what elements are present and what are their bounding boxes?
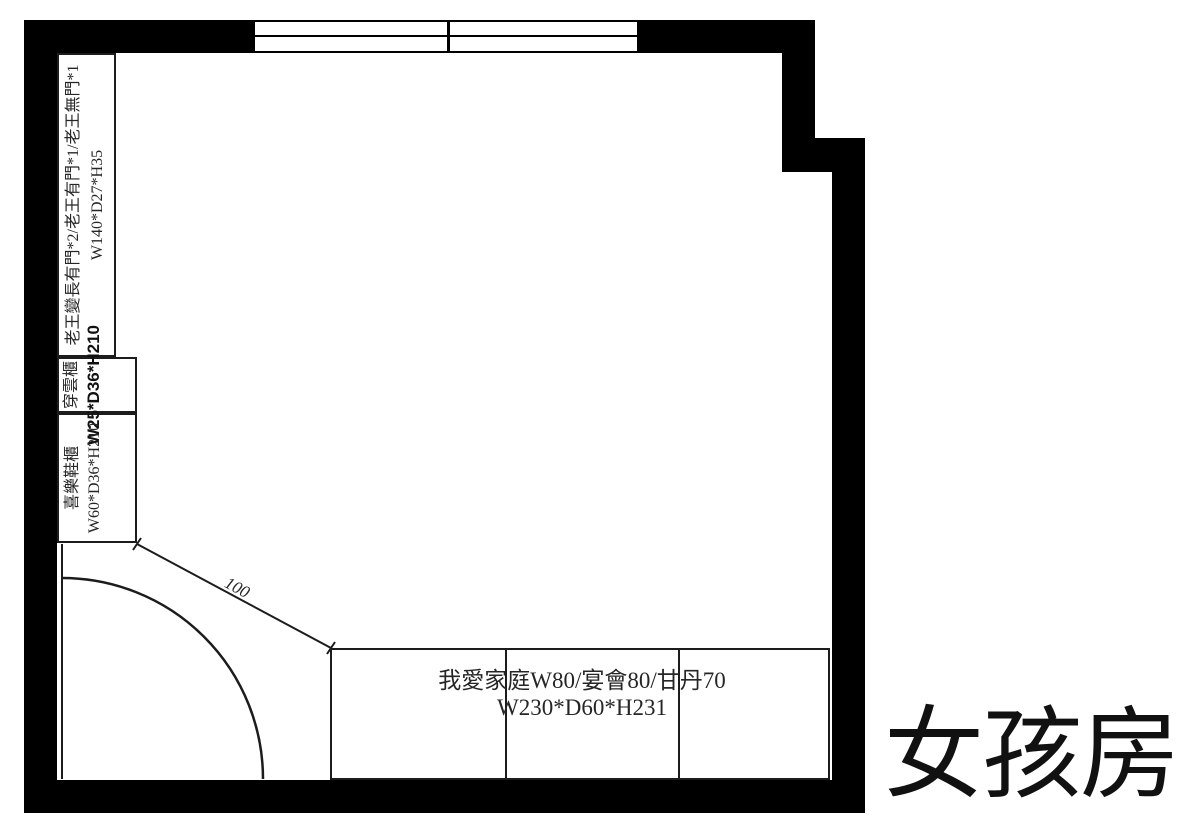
window (253, 20, 639, 53)
wall-right-lower (832, 138, 865, 813)
wardrobe-label: 我愛家庭W80/宴會80/甘丹70 W230*D60*H231 (422, 667, 742, 721)
door-swing-arc (62, 578, 263, 779)
room-name-label: 女孩房 (884, 698, 1178, 813)
shoe-cabinet-label: 喜樂鞋櫃 W60*D36*H210 (62, 393, 106, 563)
shoe-cabinet-size: W60*D36*H210 (84, 393, 106, 563)
dimension-label: 100 (213, 569, 261, 607)
wardrobe-box: 我愛家庭W80/宴會80/甘丹70 W230*D60*H231 (330, 648, 830, 780)
wall-left (24, 20, 57, 813)
floor-plan: 老王變長有門*2/老王有門*1/老王無門*1 W140*D27*H35 穿雲櫃 … (0, 0, 1200, 821)
window-midline (255, 35, 637, 37)
shoe-cabinet-name: 喜樂鞋櫃 (62, 393, 84, 563)
wardrobe-size: W230*D60*H231 (422, 694, 742, 721)
wall-bottom (24, 780, 865, 813)
wardrobe-spec: 我愛家庭W80/宴會80/甘丹70 (422, 667, 742, 694)
window-divider (447, 22, 450, 51)
